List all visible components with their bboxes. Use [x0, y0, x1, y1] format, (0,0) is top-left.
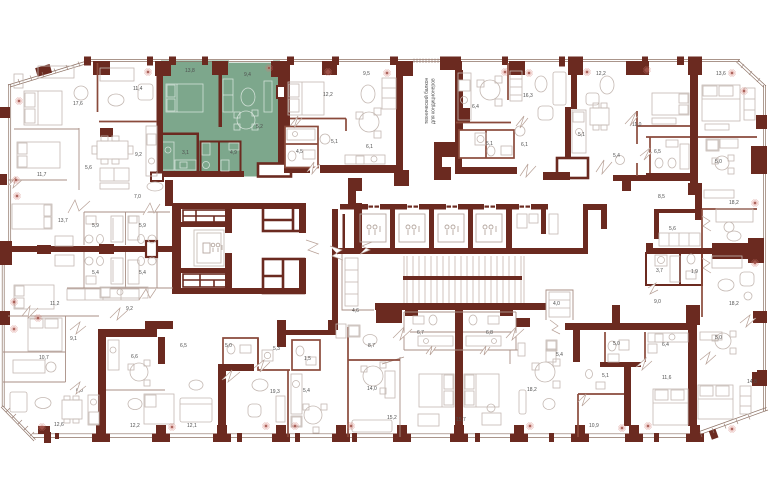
- svg-text:9,4: 9,4: [244, 72, 251, 78]
- svg-text:5,1: 5,1: [486, 141, 493, 147]
- svg-text:19,3: 19,3: [270, 389, 280, 395]
- svg-text:17,6: 17,6: [73, 101, 83, 107]
- svg-text:12,1: 12,1: [187, 423, 197, 429]
- svg-text:12,6: 12,6: [54, 422, 64, 428]
- svg-text:12,2: 12,2: [130, 423, 140, 429]
- svg-text:5,0: 5,0: [225, 343, 232, 349]
- svg-text:6,4: 6,4: [662, 342, 669, 348]
- svg-text:6,5: 6,5: [654, 149, 661, 155]
- svg-text:11,0: 11,0: [632, 122, 642, 128]
- svg-text:5,1: 5,1: [602, 373, 609, 379]
- svg-text:15,2: 15,2: [387, 415, 397, 421]
- svg-text:11,6: 11,6: [662, 375, 672, 381]
- svg-text:5,6: 5,6: [669, 226, 676, 232]
- svg-text:5,0: 5,0: [715, 335, 722, 341]
- svg-text:5,1: 5,1: [331, 139, 338, 145]
- svg-text:4,9: 4,9: [230, 150, 237, 156]
- svg-text:5,6: 5,6: [85, 165, 92, 171]
- svg-text:6,8: 6,8: [486, 330, 493, 336]
- svg-text:5,4: 5,4: [556, 352, 563, 358]
- svg-text:5,9: 5,9: [139, 223, 146, 229]
- svg-text:3,7: 3,7: [656, 268, 663, 274]
- svg-text:4,6: 4,6: [352, 308, 359, 314]
- svg-text:6,1: 6,1: [521, 142, 528, 148]
- svg-text:12,2: 12,2: [596, 71, 606, 77]
- svg-text:13,8: 13,8: [185, 68, 195, 74]
- svg-text:5,4: 5,4: [139, 270, 146, 276]
- svg-text:13,7: 13,7: [58, 218, 68, 224]
- svg-text:1,5: 1,5: [304, 356, 311, 362]
- svg-text:11,7: 11,7: [37, 172, 47, 178]
- svg-text:технический балкон: технический балкон: [423, 78, 430, 124]
- svg-text:для кондиционеров: для кондиционеров: [431, 78, 437, 124]
- svg-text:5,2: 5,2: [256, 124, 263, 130]
- svg-text:10,7: 10,7: [39, 355, 49, 361]
- svg-text:6,1: 6,1: [366, 144, 373, 150]
- svg-text:9,1: 9,1: [70, 336, 77, 342]
- svg-text:9,5: 9,5: [363, 71, 370, 77]
- svg-text:9,2: 9,2: [135, 152, 142, 158]
- svg-text:5,0: 5,0: [613, 341, 620, 347]
- svg-text:18,2: 18,2: [527, 387, 537, 393]
- svg-text:12,2: 12,2: [323, 92, 333, 98]
- svg-text:13,6: 13,6: [716, 71, 726, 77]
- svg-text:5,4: 5,4: [92, 270, 99, 276]
- svg-text:11,4: 11,4: [133, 86, 143, 92]
- svg-text:8,7: 8,7: [368, 343, 375, 349]
- svg-text:6,6: 6,6: [131, 354, 138, 360]
- svg-text:15,7: 15,7: [456, 417, 466, 423]
- svg-text:6,5: 6,5: [180, 343, 187, 349]
- svg-text:11,2: 11,2: [50, 301, 60, 307]
- svg-text:5,3: 5,3: [273, 346, 280, 352]
- svg-text:3,1: 3,1: [182, 150, 189, 156]
- svg-text:18,2: 18,2: [729, 200, 739, 206]
- svg-text:5,4: 5,4: [303, 388, 310, 394]
- svg-text:9,0: 9,0: [654, 299, 661, 305]
- svg-text:4,0: 4,0: [553, 301, 560, 307]
- svg-text:7,0: 7,0: [134, 194, 141, 200]
- svg-text:5,9: 5,9: [92, 223, 99, 229]
- svg-text:4,5: 4,5: [296, 149, 303, 155]
- svg-text:1,9: 1,9: [691, 269, 698, 275]
- svg-text:14,0: 14,0: [367, 386, 377, 392]
- svg-text:6,4: 6,4: [472, 104, 479, 110]
- svg-text:8,5: 8,5: [658, 194, 665, 200]
- svg-text:5,0: 5,0: [715, 159, 722, 165]
- svg-text:10,9: 10,9: [589, 423, 599, 429]
- svg-text:18,2: 18,2: [729, 301, 739, 307]
- svg-text:14,8: 14,8: [747, 379, 757, 385]
- svg-text:5,1: 5,1: [578, 132, 585, 138]
- svg-text:6,7: 6,7: [417, 330, 424, 336]
- svg-text:5,4: 5,4: [613, 153, 620, 159]
- svg-text:16,3: 16,3: [523, 93, 533, 99]
